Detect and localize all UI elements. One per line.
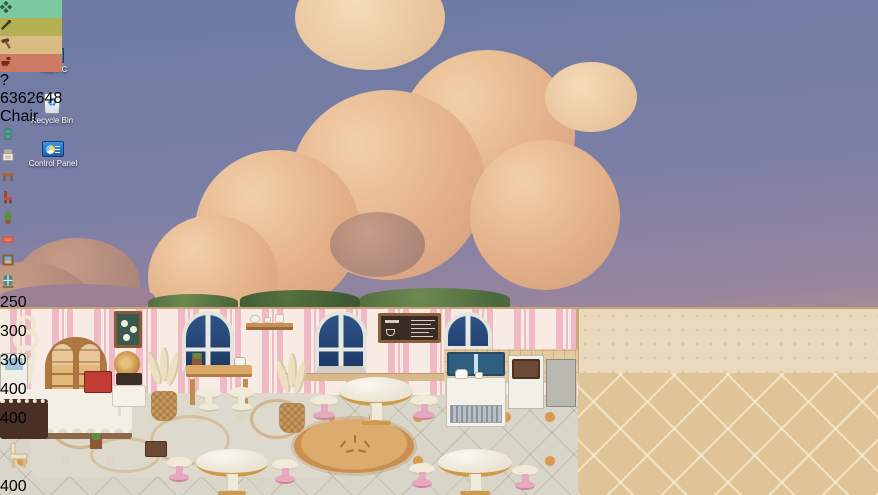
round-table[interactable] — [438, 449, 512, 495]
kitchen-wall — [578, 307, 878, 377]
eyedropper-tool-button[interactable] — [0, 18, 62, 36]
rug-icon — [0, 231, 16, 247]
item-card-partial[interactable]: 400 — [0, 381, 62, 410]
price-tag: 400 — [0, 381, 62, 399]
potted-plant-small[interactable] — [192, 353, 202, 365]
pampas-plant[interactable] — [146, 347, 182, 421]
category-rug[interactable] — [0, 231, 62, 252]
pink-stool[interactable] — [512, 465, 538, 495]
selected-stool-placement[interactable] — [405, 393, 445, 436]
round-table[interactable] — [196, 449, 268, 495]
stove[interactable] — [546, 359, 576, 407]
question-icon: ? — [0, 72, 9, 89]
cake-display-cloche[interactable] — [577, 357, 609, 439]
money-display: 6362648 — [0, 90, 62, 108]
item-card-partial[interactable]: 300 — [0, 352, 62, 381]
move-tool-button[interactable] — [0, 0, 62, 18]
category-painting[interactable] — [0, 252, 62, 273]
price-tag: 250 — [0, 294, 62, 312]
arched-window[interactable] — [315, 311, 367, 373]
gramophone[interactable] — [112, 351, 146, 417]
arched-window[interactable] — [182, 311, 234, 373]
menu-chalkboard[interactable] — [378, 313, 441, 343]
wooden-box — [145, 441, 167, 457]
item-card-partial[interactable]: 250 — [0, 294, 62, 323]
plant-icon — [0, 210, 16, 226]
help-button[interactable]: ? — [0, 72, 62, 90]
table-icon — [0, 168, 16, 184]
window-icon — [0, 273, 16, 289]
cup — [475, 372, 483, 379]
category-table[interactable] — [0, 168, 62, 189]
wooden-chair-art — [0, 439, 40, 473]
demolish-tool-button[interactable] — [0, 54, 62, 72]
flower-painting[interactable] — [114, 311, 142, 348]
pink-stool[interactable] — [410, 395, 438, 433]
game-screen: This PC ♻ Recycle Bin Control Panel — [0, 0, 878, 495]
pink-stool[interactable] — [409, 463, 435, 495]
category-kitchen[interactable] — [0, 147, 62, 168]
painting-icon — [0, 252, 16, 268]
telephone[interactable] — [234, 357, 246, 366]
furniture-shop-panel: ? 6362648 Chair — [0, 0, 62, 495]
game-scene — [0, 307, 878, 495]
cloud — [545, 62, 637, 132]
wall-shelf-tea-set[interactable] — [246, 309, 293, 333]
pie-cart[interactable] — [114, 453, 170, 495]
demolish-icon — [0, 55, 12, 67]
round-table[interactable] — [339, 377, 413, 425]
item-card-wooden-chair[interactable]: 400 — [0, 439, 62, 495]
category-plant[interactable] — [0, 210, 62, 231]
pink-stool[interactable] — [272, 459, 298, 495]
cloud — [330, 212, 425, 277]
category-window[interactable] — [0, 273, 62, 294]
white-stool[interactable] — [196, 387, 221, 423]
potted-plant-small[interactable] — [90, 433, 102, 449]
microwave-cabinet[interactable] — [508, 355, 544, 409]
category-title: Chair — [0, 108, 38, 125]
chair-icon — [0, 189, 16, 205]
item-card-partial[interactable]: 400 — [0, 410, 62, 439]
price-tag: 300 — [0, 352, 62, 370]
hammer-tool-button[interactable] — [0, 36, 62, 54]
price-tag: 300 — [0, 323, 62, 341]
potted-plant[interactable] — [577, 449, 609, 495]
kitchen-floor — [578, 373, 878, 495]
hammer-icon — [0, 37, 12, 49]
category-chair-selected[interactable] — [0, 189, 62, 210]
kitchen-counter[interactable] — [446, 377, 506, 427]
money-amount: 6362648 — [0, 90, 62, 107]
pampas-plant[interactable] — [277, 353, 307, 433]
item-card-partial[interactable]: 300 — [0, 323, 62, 352]
door-icon — [0, 126, 16, 142]
price-tag: 400 — [0, 478, 62, 495]
category-title-bar: Chair — [0, 108, 62, 126]
pink-stool[interactable] — [310, 395, 338, 433]
cloud — [470, 140, 620, 290]
stove-icon — [0, 147, 16, 163]
move-icon — [0, 1, 12, 13]
price-tag: 400 — [0, 410, 62, 428]
teapot — [455, 369, 468, 379]
eyedropper-icon — [0, 19, 12, 31]
cash-register[interactable] — [84, 371, 112, 393]
white-stool[interactable] — [229, 387, 254, 423]
category-door[interactable] — [0, 126, 62, 147]
